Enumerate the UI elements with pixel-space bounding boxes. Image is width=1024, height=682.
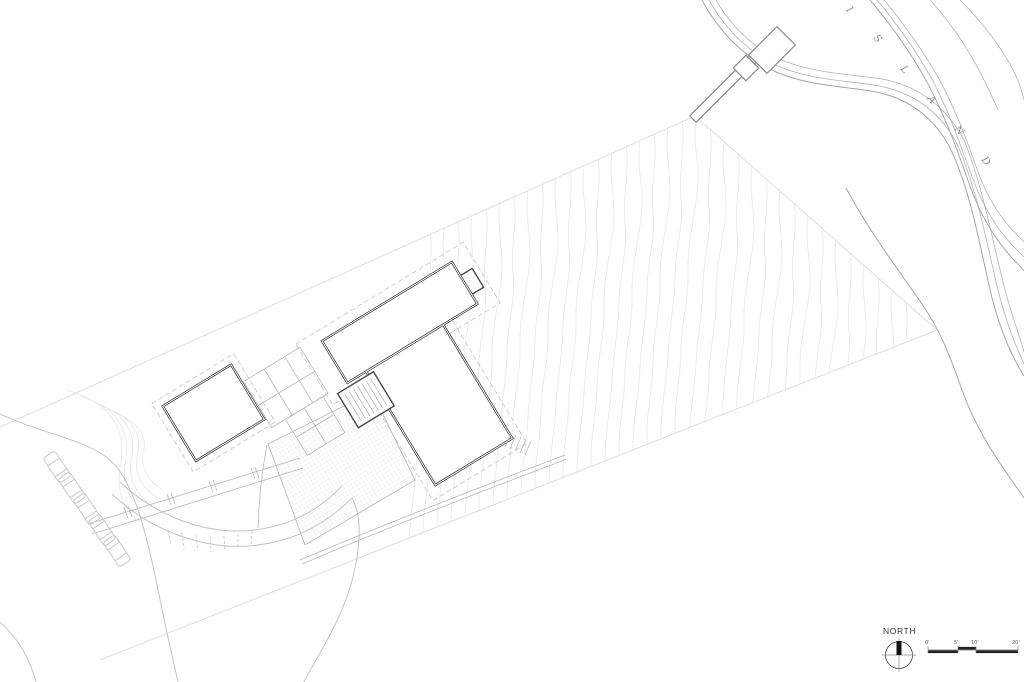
scale-segment — [958, 647, 976, 650]
island-letter: I — [843, 4, 855, 16]
site-plan-canvas: I S L A N D NORTH 0' 5' 10' 20' — [0, 0, 1024, 682]
terrace-connector — [258, 445, 267, 528]
north-label: NORTH — [883, 626, 916, 636]
island-letter: N — [951, 123, 966, 138]
car — [58, 472, 86, 505]
southwest-corner-line — [0, 622, 36, 682]
scale-segment — [928, 651, 958, 654]
car — [88, 514, 116, 547]
scale-segment — [976, 651, 1018, 654]
island-letter: D — [978, 154, 992, 168]
buildings — [152, 222, 570, 600]
compass-needle — [897, 641, 902, 655]
island-letter: S — [871, 33, 884, 45]
north-compass: NORTH — [882, 626, 916, 672]
west-shore-line — [0, 414, 178, 682]
dock — [690, 27, 796, 123]
island-label: I S L A N D — [843, 4, 992, 168]
scale-label: 20' — [1012, 640, 1020, 646]
boardwalk-path — [88, 458, 303, 534]
car — [73, 493, 101, 526]
site-plan-drawing: I S L A N D NORTH 0' 5' 10' 20' — [0, 0, 1024, 682]
slope-steps — [168, 530, 252, 552]
guest-house — [163, 365, 265, 461]
scale-label: 5' — [954, 640, 959, 646]
contour-pocket — [66, 390, 163, 522]
scale-bar: 0' 5' 10' 20' — [925, 640, 1020, 653]
car — [43, 451, 71, 484]
scale-label: 10' — [971, 640, 979, 646]
scale-label: 0' — [925, 640, 930, 646]
car — [103, 535, 131, 568]
island-letter: L — [897, 63, 911, 76]
